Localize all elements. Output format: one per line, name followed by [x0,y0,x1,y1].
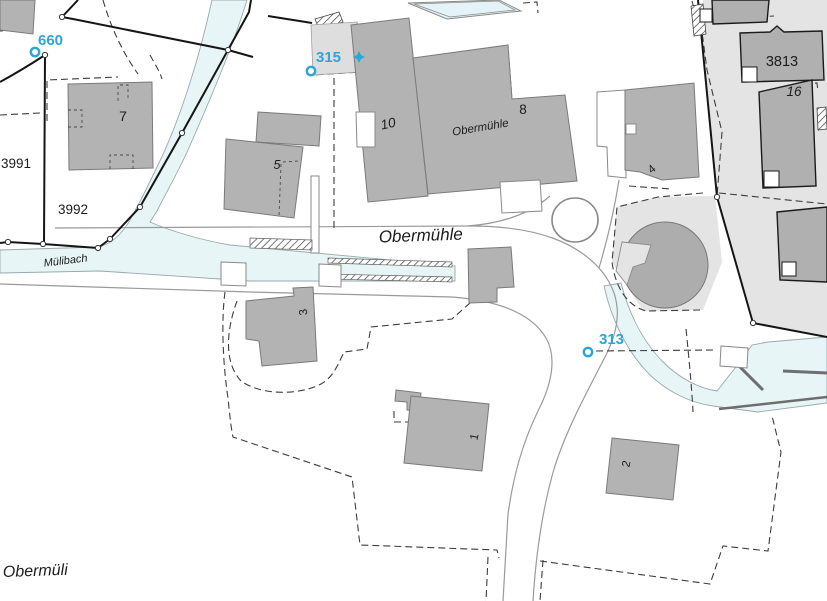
house-label-16: 16 [786,84,802,99]
survey-point-label: 660 [38,32,63,49]
locality-label: Obermüli [3,562,69,581]
building-2 [606,438,679,500]
map-canvas[interactable]: Obermühle Obermühle Mülibach Obermüli 39… [0,0,827,601]
parcel-label-3992: 3992 [58,202,88,217]
survey-point-label: 313 [599,331,624,348]
building-3 [246,287,317,366]
bridge [319,264,341,287]
building-4-annex [597,90,626,178]
survey-point-label: 315 [316,49,341,66]
building-3813-annex [742,67,757,82]
building-zone-top [712,0,769,24]
survey-point-313[interactable]: 313 [584,331,624,356]
survey-point-ring[interactable] [307,67,315,75]
building-16-annex [764,171,779,187]
house-label-7: 7 [119,108,127,124]
building-zone-top-annex [700,9,712,22]
glass-canopy [408,0,521,19]
stairs-hatch [250,238,312,250]
cadastral-map: Obermühle Obermühle Mülibach Obermüli 39… [0,0,827,601]
building-4-notch [626,124,636,134]
survey-point-ring[interactable] [584,348,592,356]
house-label-8: 8 [519,102,527,117]
survey-point-ring[interactable] [31,48,39,56]
roundabout [552,198,598,242]
building-10 [351,18,428,202]
retaining-wall [783,371,827,373]
building-topleft [0,0,35,34]
stairs-hatch [817,107,827,130]
building-right-edge-annex [782,262,796,276]
building-1 [404,396,489,471]
building-7 [68,82,153,170]
building-10-notch [356,112,375,147]
house-label-5: 5 [274,158,281,172]
bridge [221,262,246,286]
building-5 [224,139,303,218]
building-at-culvert [468,247,514,303]
building-5-upper [256,112,321,146]
building-white-south [500,180,542,213]
parcel-label-3813: 3813 [766,54,798,70]
street-label: Obermühle [378,225,463,247]
parcel-label-3991: 3991 [1,156,31,171]
channel-structure [720,346,748,368]
